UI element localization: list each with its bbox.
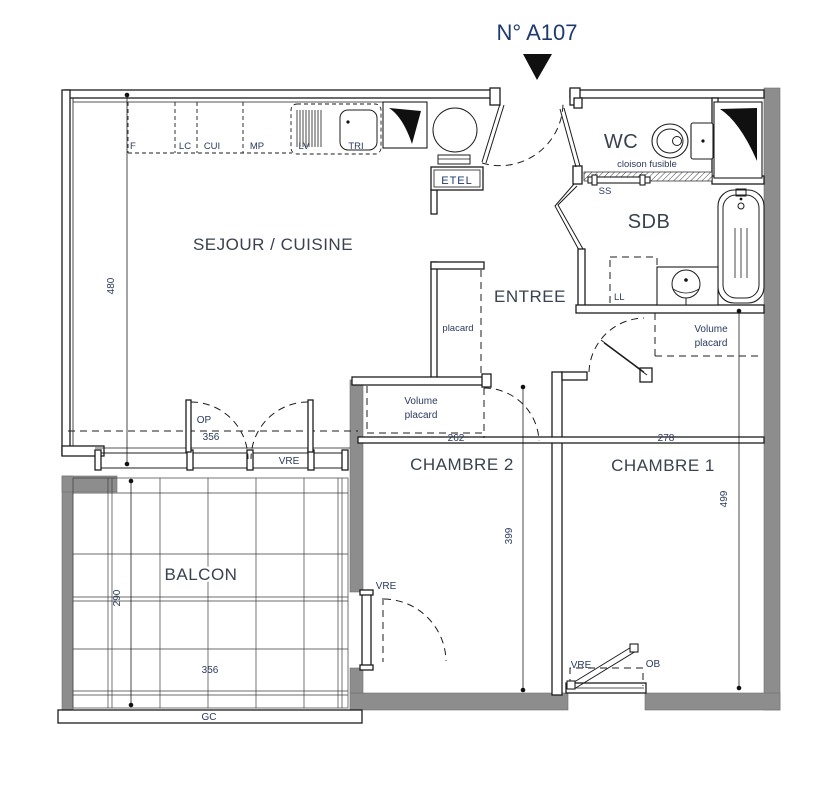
- bathtub-icon: [718, 189, 764, 303]
- kitchen-counter: F LC CUI MP LV TRI ETEL: [128, 102, 483, 190]
- chambre1-label: CHAMBRE 1: [611, 456, 715, 475]
- chambre2-door-swing: [484, 388, 539, 441]
- ob-label: OB: [646, 659, 661, 670]
- gc-label: GC: [202, 712, 217, 723]
- chambre1-door-leaf: [604, 343, 647, 375]
- entrance-door-leaf: [486, 105, 504, 163]
- entrance-jamb-left: [490, 88, 500, 105]
- cooktop-label: CUI: [204, 141, 220, 152]
- wall-top-right: [570, 90, 764, 98]
- volume-placard-label: Volume: [694, 324, 728, 335]
- washbasin-icon: [657, 267, 718, 305]
- fridge-label: F: [130, 141, 136, 152]
- volume-placard-label: Volume: [404, 396, 438, 407]
- sejour-height-dim: 480: [106, 277, 117, 294]
- op-label: OP: [197, 415, 212, 426]
- chambre2-door-post: [482, 374, 491, 387]
- vre-label: VRE: [571, 660, 592, 671]
- vre-label: VRE: [376, 581, 397, 592]
- volume-placard-label: placard: [695, 338, 728, 349]
- wc-door-leaf: [560, 109, 576, 167]
- chambre2-width-dim: 262: [448, 433, 465, 444]
- window-post: [342, 450, 348, 470]
- chambre2-window: [360, 590, 446, 670]
- balcon-label: BALCON: [165, 565, 238, 584]
- wall-top-left: [65, 90, 498, 98]
- cloison-fusible-label: cloison fusible: [617, 159, 677, 170]
- wall-west-glazed: [62, 90, 70, 455]
- vre-label: VRE: [279, 456, 300, 467]
- door-width-dim: 356: [203, 432, 220, 443]
- chambre1-door-swing: [589, 318, 644, 372]
- wc-door-leaf: [564, 108, 580, 166]
- wc-door-post: [573, 166, 582, 184]
- ss-label: SS: [599, 186, 612, 197]
- volume-placard-label: placard: [405, 410, 438, 421]
- etel-wall-stub: [431, 190, 437, 214]
- window-post: [247, 450, 253, 470]
- entrance-arrow-icon: [523, 54, 552, 80]
- toilet-icon: [652, 123, 713, 159]
- wall-bottom-ch2: [350, 693, 568, 710]
- dishwasher-label: LV: [299, 141, 311, 152]
- wall-ch2-west-lower: [350, 668, 363, 693]
- floor-plan-page: N° A107: [0, 0, 828, 800]
- balcony: BALCON BALCON GC 356: [58, 478, 362, 723]
- chambre1-room: CHAMBRE 1 VRE OB: [566, 456, 715, 693]
- entree-area: ENTREE placard: [442, 270, 566, 378]
- entrance-door-leaf: [482, 104, 500, 162]
- washer-column-label: LC: [179, 141, 191, 152]
- hall-wall-stub: [552, 372, 562, 442]
- sdb-chamfer-wall-b: [555, 184, 580, 252]
- chambre1-width-dim: 278: [658, 433, 675, 444]
- wall-ch2-west-upper: [350, 380, 363, 592]
- floor-plan: N° A107: [0, 0, 828, 800]
- chambre2-height-dim: 399: [504, 527, 515, 544]
- wall-bottom-ch1: [645, 693, 780, 710]
- etel-label: ETEL: [441, 175, 473, 187]
- ll-label: LL: [614, 292, 625, 303]
- chambre2-window-swing: [384, 599, 446, 661]
- etel-shelf: [438, 155, 470, 164]
- column-circle: [433, 108, 477, 152]
- chambre1-door-leaf: [601, 340, 644, 372]
- placard-top-wall: [431, 262, 484, 269]
- chambre2-label: CHAMBRE 2: [410, 455, 514, 474]
- wall-right: [764, 88, 780, 710]
- apartment-number: N° A107: [497, 20, 578, 45]
- furniture-label: MP: [250, 141, 264, 152]
- sdb-room: SDB LL Volume placard: [610, 189, 764, 356]
- placard-left-wall: [431, 262, 437, 380]
- window-post: [308, 450, 314, 470]
- entrance-door-swing: [482, 104, 563, 166]
- balcon-height-dim: 290: [112, 589, 123, 606]
- towel-rail-icon: [588, 175, 650, 185]
- chambre2-room: CHAMBRE 2 Volume placard VRE: [360, 386, 514, 670]
- sdb-bottom-wall: [576, 305, 764, 313]
- wc-wall-stub: [574, 98, 582, 108]
- wc-label: WC: [604, 131, 638, 153]
- window-post: [95, 450, 101, 470]
- sejour-label: SEJOUR / CUISINE: [193, 235, 353, 254]
- sdb-west-wall: [578, 249, 585, 307]
- chambre2-north-wall: [352, 377, 484, 385]
- chambre1-door-jamb: [562, 372, 587, 380]
- balcon-width-dim: 356: [202, 665, 219, 676]
- window-post: [187, 450, 193, 470]
- wall-balcony-left: [62, 476, 73, 710]
- chambre-divider-wall: [552, 440, 562, 695]
- french-door-leaf: [308, 400, 313, 452]
- chambre1-height-dim: 499: [719, 490, 730, 507]
- doors-top: [482, 104, 580, 167]
- french-door-leaf: [186, 400, 191, 452]
- entree-label: ENTREE: [494, 287, 566, 306]
- sejour-room: SEJOUR / CUISINE OP 356 VRE: [62, 235, 358, 470]
- wall-balcony-top-stub: [62, 476, 117, 492]
- sdb-label: SDB: [628, 211, 671, 233]
- chambres-top-wall: [358, 437, 764, 443]
- placard-label: placard: [442, 323, 473, 334]
- sink-label: TRI: [348, 141, 363, 152]
